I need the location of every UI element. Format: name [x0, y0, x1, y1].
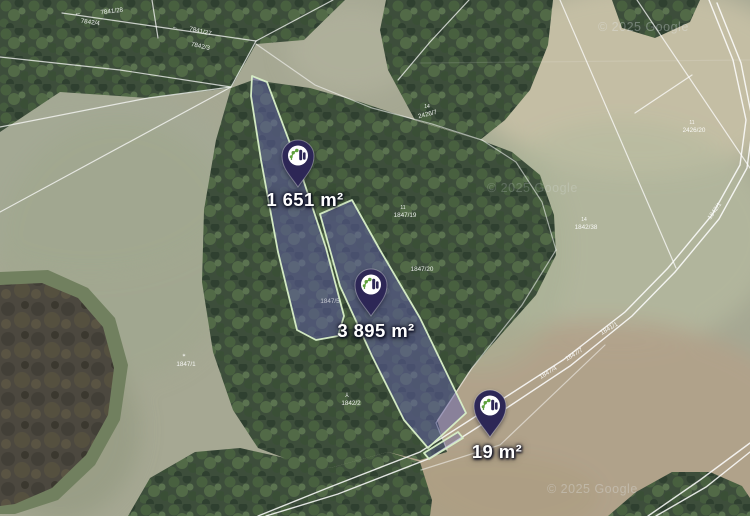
map-canvas: ←7841/287842/4←7841/277842/3142426/71124… [0, 0, 750, 516]
parcel-number-label: 1847/20 [411, 266, 434, 273]
parcel-area-label-3: 19 m² [472, 441, 522, 463]
parcel-number-label: ✶ [182, 353, 186, 359]
map-watermark: © 2025 Google [487, 181, 578, 195]
map-pin-2[interactable] [352, 267, 390, 317]
map-pin-1[interactable] [279, 138, 317, 188]
parcel-number-label: 1847/1 [176, 361, 196, 368]
parcel-number-label: 1842/2 [341, 400, 361, 407]
parcel-number-label: ← [74, 10, 82, 18]
parcel-number-label: 14 [424, 104, 430, 110]
parcel-number-label: 1847/19 [394, 212, 417, 219]
parcel-number-label: ⅄ [344, 392, 349, 399]
parcel-area-label-1: 1 651 m² [266, 189, 343, 211]
parcel-number-label: 2426/20 [683, 127, 706, 134]
map-watermark: © 2025 Google [598, 20, 689, 34]
map-watermark: © 2025 Google [547, 482, 638, 496]
parcel-number-label: 11 [689, 120, 694, 126]
pin-graphic [471, 388, 509, 438]
satellite-map-view[interactable]: ←7841/287842/4←7841/277842/3142426/71124… [0, 0, 750, 516]
parcel-number-label: 1842/38 [575, 224, 598, 231]
pin-graphic [352, 267, 390, 317]
parcel-number-label: 1847/5 [320, 298, 340, 305]
pin-graphic [279, 138, 317, 188]
parcel-number-label: 11 [400, 205, 405, 211]
parcel-area-label-2: 3 895 m² [337, 320, 414, 342]
parcel-number-label: ← [171, 23, 179, 31]
parcel-number-label: 14 [581, 217, 587, 223]
map-pin-3[interactable] [471, 388, 509, 438]
